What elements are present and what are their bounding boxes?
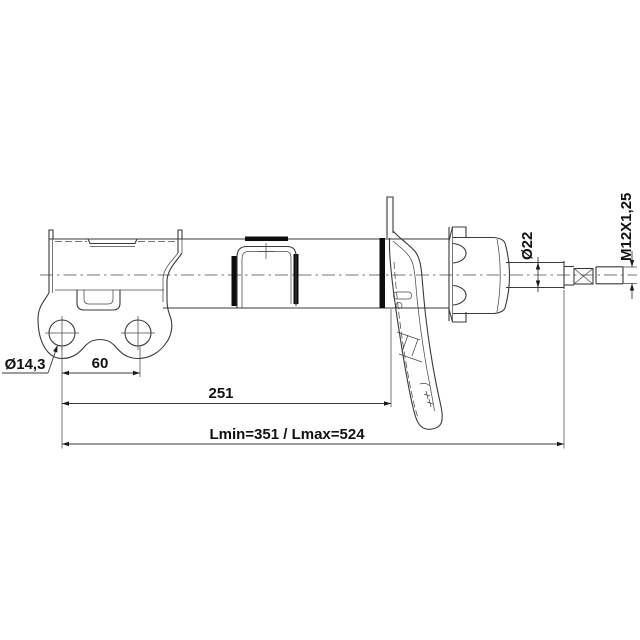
hole-diameter-label: Ø14,3 — [5, 356, 46, 373]
dimension-60: 60 — [62, 347, 140, 449]
hole-spacing-label: 60 — [92, 355, 109, 372]
mounting-holes — [45, 316, 155, 350]
strut-technical-drawing: Ø14,3 60 251 Lmin=351 / Lmax=524 Ø22 — [0, 0, 640, 640]
dimension-hole-diameter: Ø14,3 — [2, 345, 58, 373]
clamp-seal-top — [245, 237, 288, 242]
dimension-rod-diameter: Ø22 — [519, 232, 540, 292]
rod-end-thread — [564, 267, 623, 286]
dimension-251: 251 — [62, 309, 391, 407]
rod-diameter-label: Ø22 — [519, 232, 536, 260]
dimension-thread: M12X1,25 — [618, 193, 637, 299]
clamp-seal-left — [232, 256, 237, 306]
mount-length-label: 251 — [208, 385, 233, 402]
drawing-canvas: Ø14,3 60 251 Lmin=351 / Lmax=524 Ø22 — [0, 0, 640, 640]
stamped-slot — [55, 290, 164, 310]
spring-seat — [449, 227, 510, 322]
thread-spec-label: M12X1,25 — [618, 193, 635, 261]
hose-clamp-bracket — [232, 237, 299, 309]
seal-ring — [380, 238, 386, 308]
length-range-label: Lmin=351 / Lmax=524 — [209, 426, 365, 443]
knuckle-bracket — [387, 197, 442, 429]
left-mounting-bracket — [38, 230, 182, 359]
